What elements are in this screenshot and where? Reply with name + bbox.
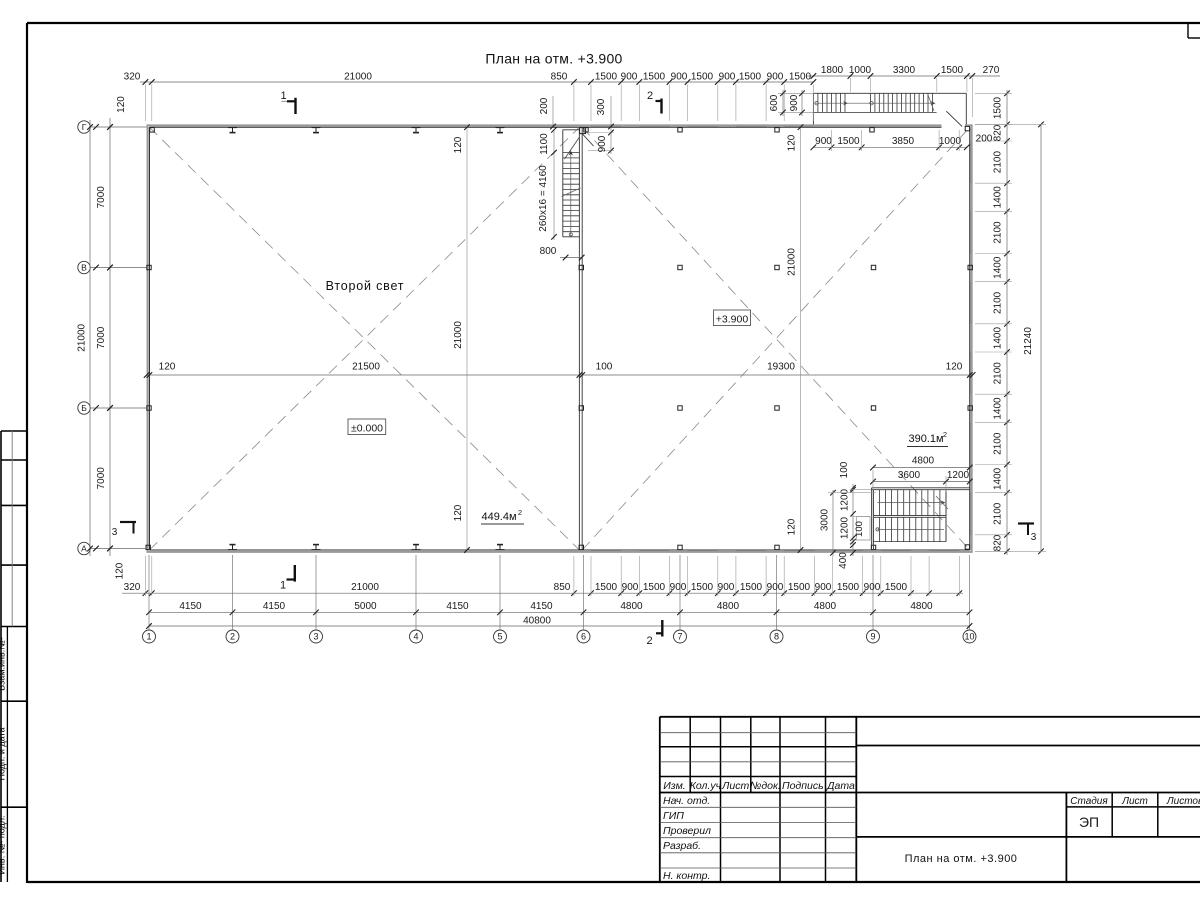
svg-text:2100: 2100 xyxy=(993,221,1004,244)
svg-text:План на отм. +3.900: План на отм. +3.900 xyxy=(905,853,1018,865)
svg-text:7000: 7000 xyxy=(96,326,107,349)
svg-text:2: 2 xyxy=(646,635,652,647)
svg-text:900: 900 xyxy=(671,72,688,83)
svg-text:3600: 3600 xyxy=(898,470,921,481)
svg-text:1200: 1200 xyxy=(840,488,851,511)
svg-text:2100: 2100 xyxy=(993,362,1004,385)
svg-text:7000: 7000 xyxy=(96,467,107,490)
svg-text:900: 900 xyxy=(789,94,800,111)
svg-text:900: 900 xyxy=(621,72,638,83)
svg-text:200: 200 xyxy=(539,97,550,114)
svg-text:7000: 7000 xyxy=(96,186,107,209)
svg-text:4800: 4800 xyxy=(910,601,933,612)
svg-text:№док.: №док. xyxy=(750,780,781,792)
svg-text:19300: 19300 xyxy=(767,362,795,373)
svg-text:Изм.: Изм. xyxy=(663,780,685,792)
svg-text:1200: 1200 xyxy=(840,516,851,539)
svg-text:4150: 4150 xyxy=(530,601,553,612)
svg-text:390.1м: 390.1м xyxy=(908,433,943,445)
svg-text:4800: 4800 xyxy=(912,456,935,467)
svg-text:2100: 2100 xyxy=(993,502,1004,525)
svg-text:Подпись: Подпись xyxy=(782,780,824,792)
svg-text:900: 900 xyxy=(815,582,832,593)
svg-text:1400: 1400 xyxy=(993,186,1004,209)
svg-text:100: 100 xyxy=(839,461,850,478)
svg-text:4800: 4800 xyxy=(814,601,837,612)
svg-text:4150: 4150 xyxy=(179,601,202,612)
svg-text:Подп. и дата: Подп. и дата xyxy=(0,727,7,780)
svg-text:850: 850 xyxy=(551,72,568,83)
svg-text:900: 900 xyxy=(718,582,735,593)
svg-text:900: 900 xyxy=(767,72,784,83)
svg-text:1500: 1500 xyxy=(643,582,666,593)
svg-text:600: 600 xyxy=(769,94,780,111)
svg-text:200: 200 xyxy=(976,134,993,145)
svg-text:3000: 3000 xyxy=(820,508,831,531)
svg-text:21500: 21500 xyxy=(352,362,380,373)
svg-text:820: 820 xyxy=(993,124,1004,141)
svg-text:120: 120 xyxy=(946,362,963,373)
svg-text:2: 2 xyxy=(943,430,947,439)
svg-text:1: 1 xyxy=(280,580,286,592)
svg-text:900: 900 xyxy=(719,72,736,83)
svg-text:+3.900: +3.900 xyxy=(716,314,749,326)
svg-text:900: 900 xyxy=(622,582,639,593)
svg-text:4: 4 xyxy=(413,632,418,642)
svg-text:900: 900 xyxy=(815,136,832,147)
svg-text:±0.000: ±0.000 xyxy=(351,423,383,435)
svg-text:120: 120 xyxy=(116,96,127,113)
svg-text:3: 3 xyxy=(112,527,118,538)
svg-text:1: 1 xyxy=(280,90,286,102)
svg-text:8: 8 xyxy=(774,632,779,642)
svg-text:ЭП: ЭП xyxy=(1079,814,1099,830)
svg-text:1500: 1500 xyxy=(941,65,964,76)
svg-text:1: 1 xyxy=(146,632,151,642)
svg-text:900: 900 xyxy=(670,582,687,593)
svg-text:3300: 3300 xyxy=(893,65,916,76)
svg-text:120: 120 xyxy=(115,562,126,579)
svg-text:Б: Б xyxy=(81,403,87,413)
svg-text:Дата: Дата xyxy=(826,780,855,792)
svg-text:820: 820 xyxy=(993,534,1004,551)
svg-text:1800: 1800 xyxy=(821,65,844,76)
svg-text:1400: 1400 xyxy=(993,327,1004,350)
svg-text:900: 900 xyxy=(597,135,608,152)
svg-text:6: 6 xyxy=(581,632,586,642)
svg-text:2100: 2100 xyxy=(993,151,1004,174)
svg-text:1500: 1500 xyxy=(691,72,714,83)
svg-text:4800: 4800 xyxy=(620,601,643,612)
svg-text:120: 120 xyxy=(159,362,176,373)
svg-text:21000: 21000 xyxy=(344,72,372,83)
svg-text:1400: 1400 xyxy=(993,467,1004,490)
svg-text:1500: 1500 xyxy=(837,582,860,593)
svg-text:120: 120 xyxy=(787,518,798,535)
svg-text:3850: 3850 xyxy=(892,136,915,147)
svg-text:Инв. №- подл.: Инв. №- подл. xyxy=(0,815,7,874)
svg-text:320: 320 xyxy=(124,72,141,83)
svg-text:21000: 21000 xyxy=(453,321,464,349)
svg-text:В: В xyxy=(81,263,87,273)
svg-text:9: 9 xyxy=(870,632,875,642)
svg-text:5000: 5000 xyxy=(354,601,377,612)
svg-text:21000: 21000 xyxy=(351,582,379,593)
svg-text:1400: 1400 xyxy=(993,256,1004,279)
svg-text:Н. контр.: Н. контр. xyxy=(663,870,710,882)
svg-text:Г: Г xyxy=(82,122,87,132)
svg-text:Проверил: Проверил xyxy=(663,825,711,837)
svg-text:4150: 4150 xyxy=(263,601,286,612)
svg-text:Второй свет: Второй свет xyxy=(326,279,405,293)
svg-text:2: 2 xyxy=(230,632,235,642)
svg-text:1500: 1500 xyxy=(595,72,618,83)
svg-text:1500: 1500 xyxy=(643,72,666,83)
svg-text:449.4м: 449.4м xyxy=(481,511,516,523)
svg-text:1400: 1400 xyxy=(993,397,1004,420)
svg-text:5: 5 xyxy=(497,632,502,642)
svg-text:100: 100 xyxy=(596,362,613,373)
svg-text:Лист: Лист xyxy=(1121,796,1148,807)
svg-text:2100: 2100 xyxy=(993,291,1004,314)
svg-text:270: 270 xyxy=(983,65,1000,76)
svg-text:Взам.инв.№-: Взам.инв.№- xyxy=(0,637,7,691)
svg-text:ГИП: ГИП xyxy=(663,810,684,822)
svg-text:300: 300 xyxy=(596,98,607,115)
svg-text:850: 850 xyxy=(554,582,571,593)
svg-text:1500: 1500 xyxy=(993,96,1004,119)
svg-text:320: 320 xyxy=(124,582,141,593)
svg-text:1500: 1500 xyxy=(739,72,762,83)
svg-text:2: 2 xyxy=(518,508,522,517)
svg-text:1000: 1000 xyxy=(849,65,872,76)
svg-text:7: 7 xyxy=(677,632,682,642)
svg-text:21240: 21240 xyxy=(1023,327,1034,355)
svg-text:3: 3 xyxy=(313,632,318,642)
svg-text:А: А xyxy=(81,544,87,554)
svg-text:260x16 = 4160: 260x16 = 4160 xyxy=(538,165,549,232)
svg-text:Листов: Листов xyxy=(1166,796,1200,807)
svg-text:10: 10 xyxy=(964,632,974,642)
svg-text:900: 900 xyxy=(864,582,881,593)
svg-text:400: 400 xyxy=(838,552,849,569)
svg-text:100: 100 xyxy=(854,521,865,537)
svg-text:1500: 1500 xyxy=(789,72,812,83)
svg-text:1500: 1500 xyxy=(740,582,763,593)
svg-text:1500: 1500 xyxy=(595,582,618,593)
svg-text:120: 120 xyxy=(787,134,798,151)
svg-text:1000: 1000 xyxy=(939,136,962,147)
svg-text:120: 120 xyxy=(453,504,464,521)
svg-text:120: 120 xyxy=(453,136,464,153)
svg-text:1500: 1500 xyxy=(788,582,811,593)
svg-text:1500: 1500 xyxy=(885,582,908,593)
svg-text:Нач. отд.: Нач. отд. xyxy=(663,795,710,807)
svg-text:Кол.уч: Кол.уч xyxy=(690,780,722,792)
svg-text:1100: 1100 xyxy=(539,133,550,155)
svg-text:900: 900 xyxy=(767,582,784,593)
svg-text:Лист: Лист xyxy=(721,780,749,792)
svg-text:1200: 1200 xyxy=(947,470,970,481)
svg-text:1500: 1500 xyxy=(691,582,714,593)
svg-text:4150: 4150 xyxy=(446,601,469,612)
svg-text:3: 3 xyxy=(1031,532,1037,543)
svg-text:800: 800 xyxy=(540,246,557,257)
svg-text:21000: 21000 xyxy=(77,323,88,351)
svg-text:1500: 1500 xyxy=(837,136,860,147)
svg-text:Разраб.: Разраб. xyxy=(663,840,701,852)
svg-text:21000: 21000 xyxy=(787,248,798,276)
svg-text:2: 2 xyxy=(647,90,653,102)
svg-text:2100: 2100 xyxy=(993,432,1004,455)
svg-text:40800: 40800 xyxy=(523,616,551,627)
svg-text:4800: 4800 xyxy=(717,601,740,612)
svg-text:План на отм. +3.900: План на отм. +3.900 xyxy=(485,51,622,67)
svg-text:Стадия: Стадия xyxy=(1070,796,1108,807)
